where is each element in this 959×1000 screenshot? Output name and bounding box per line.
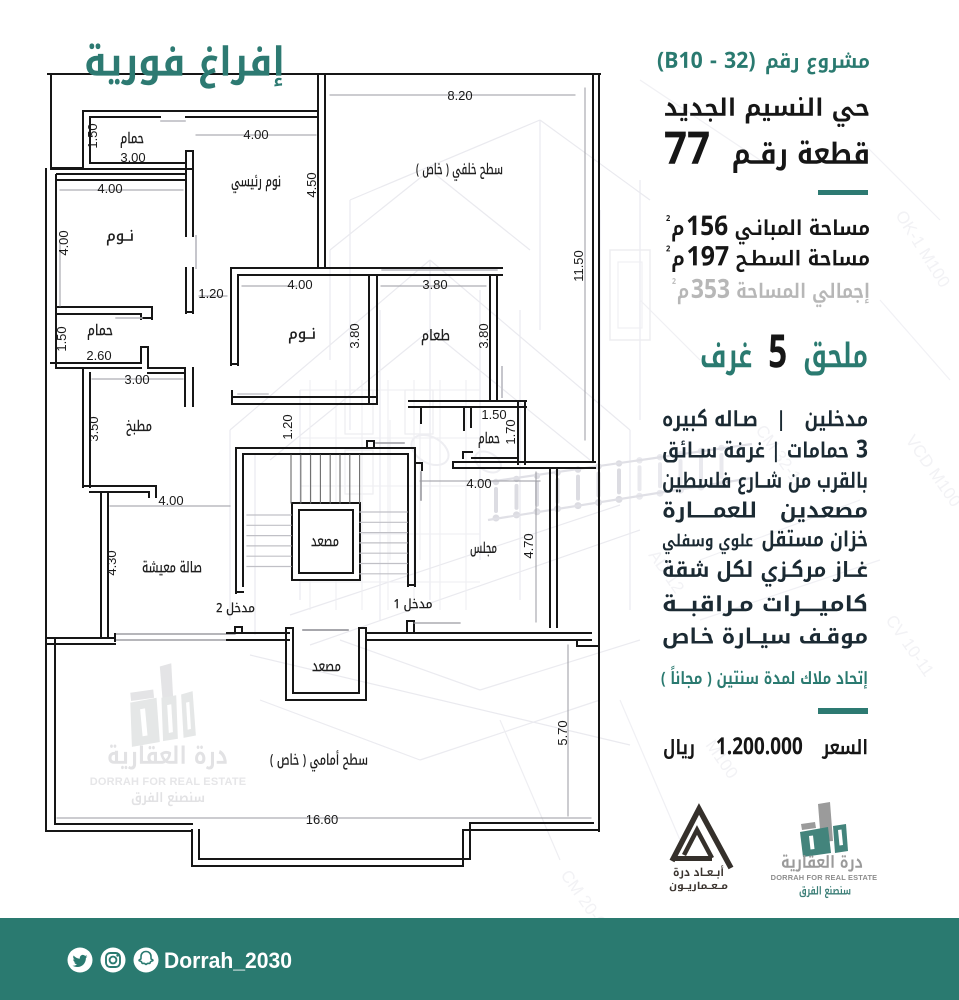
svg-text:4.00: 4.00 [158,493,183,508]
svg-text:2.60: 2.60 [86,348,111,363]
svg-text:4.00: 4.00 [466,476,491,491]
svg-text:4.00: 4.00 [97,181,122,196]
svg-text:1.70: 1.70 [503,419,518,444]
svg-text:4.70: 4.70 [521,533,536,558]
svg-text:16.60: 16.60 [306,812,339,827]
svg-text:4.30: 4.30 [104,550,119,575]
svg-text:3.00: 3.00 [124,372,149,387]
svg-text:3.80: 3.80 [422,277,447,292]
svg-text:4.00: 4.00 [56,230,71,255]
svg-text:8.20: 8.20 [447,88,472,103]
svg-text:3.50: 3.50 [86,416,101,441]
svg-text:4.00: 4.00 [243,127,268,142]
svg-text:4.00: 4.00 [287,277,312,292]
svg-text:1.20: 1.20 [198,286,223,301]
svg-text:4.50: 4.50 [304,172,319,197]
svg-text:5.70: 5.70 [555,720,570,745]
svg-text:3.00: 3.00 [120,150,145,165]
svg-text:DORRAH FOR REAL ESTATE: DORRAH FOR REAL ESTATE [90,776,247,788]
svg-text:11.50: 11.50 [571,250,586,282]
svg-text:Dorrah_2030: Dorrah_2030 [164,948,292,973]
svg-text:3.80: 3.80 [347,323,362,348]
svg-text:DORRAH FOR REAL ESTATE: DORRAH FOR REAL ESTATE [771,873,878,882]
svg-text:1.50: 1.50 [85,123,100,148]
svg-text:1.50: 1.50 [54,326,69,351]
svg-text:3.80: 3.80 [476,323,491,348]
svg-text:1.20: 1.20 [280,414,295,439]
